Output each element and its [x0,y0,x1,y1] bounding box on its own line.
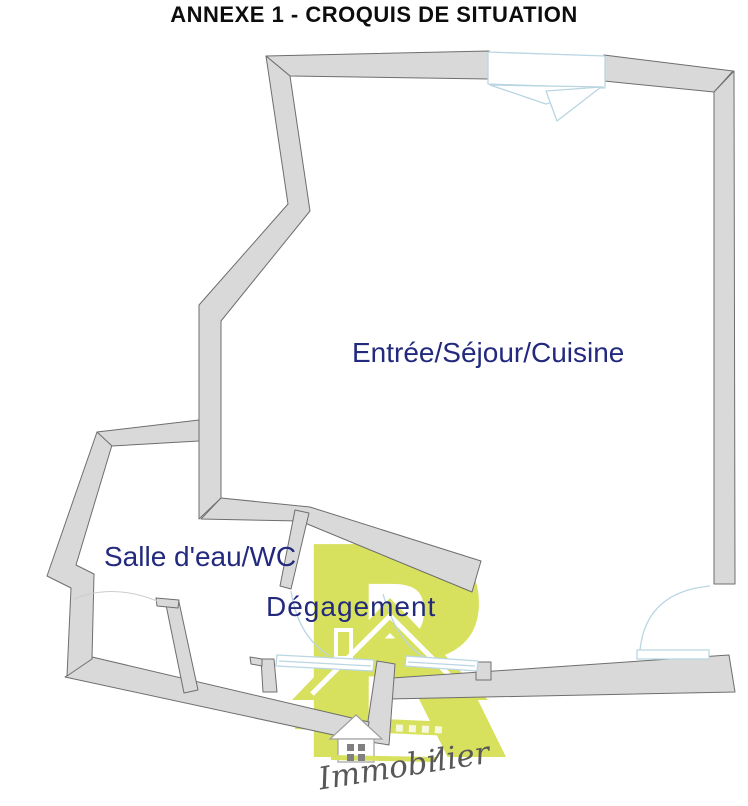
floorplan-page: ANNEXE 1 - CROQUIS DE SITUATION R [0,0,748,806]
room-label-hallway: Dégagement [266,592,436,623]
wall-main-left [199,56,310,519]
watermark-house-window [358,744,365,751]
wall-wing-left [47,432,112,676]
top-window-icon [488,52,605,88]
wall-stub-b-cap [250,657,262,666]
watermark-house-window [347,744,354,751]
wall-top-right [604,55,733,92]
floorplan-svg: R [0,0,748,806]
wall-stub-a-cap [156,598,179,608]
room-label-bathroom: Salle d'eau/WC [104,542,296,573]
room-label-main: Entrée/Séjour/Cuisine [352,338,624,369]
wall-top-left [266,51,489,79]
entrance-threshold-icon [637,650,709,659]
top-window-casement2-icon [546,87,601,121]
wall-stub-b [261,659,277,692]
wall-bathroom-top [97,420,199,446]
entrance-door-arc-icon [640,586,710,650]
wall-right [714,71,735,584]
